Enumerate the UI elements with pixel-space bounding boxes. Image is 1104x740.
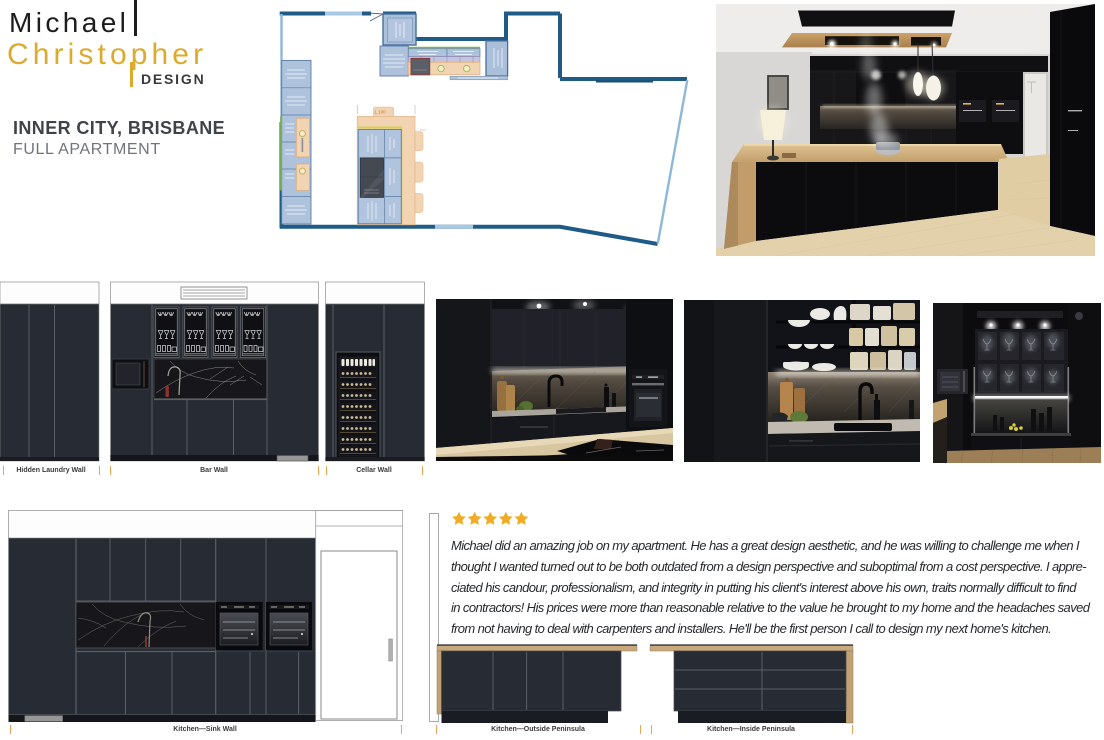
svg-text:1.100: 1.100 bbox=[374, 110, 386, 115]
